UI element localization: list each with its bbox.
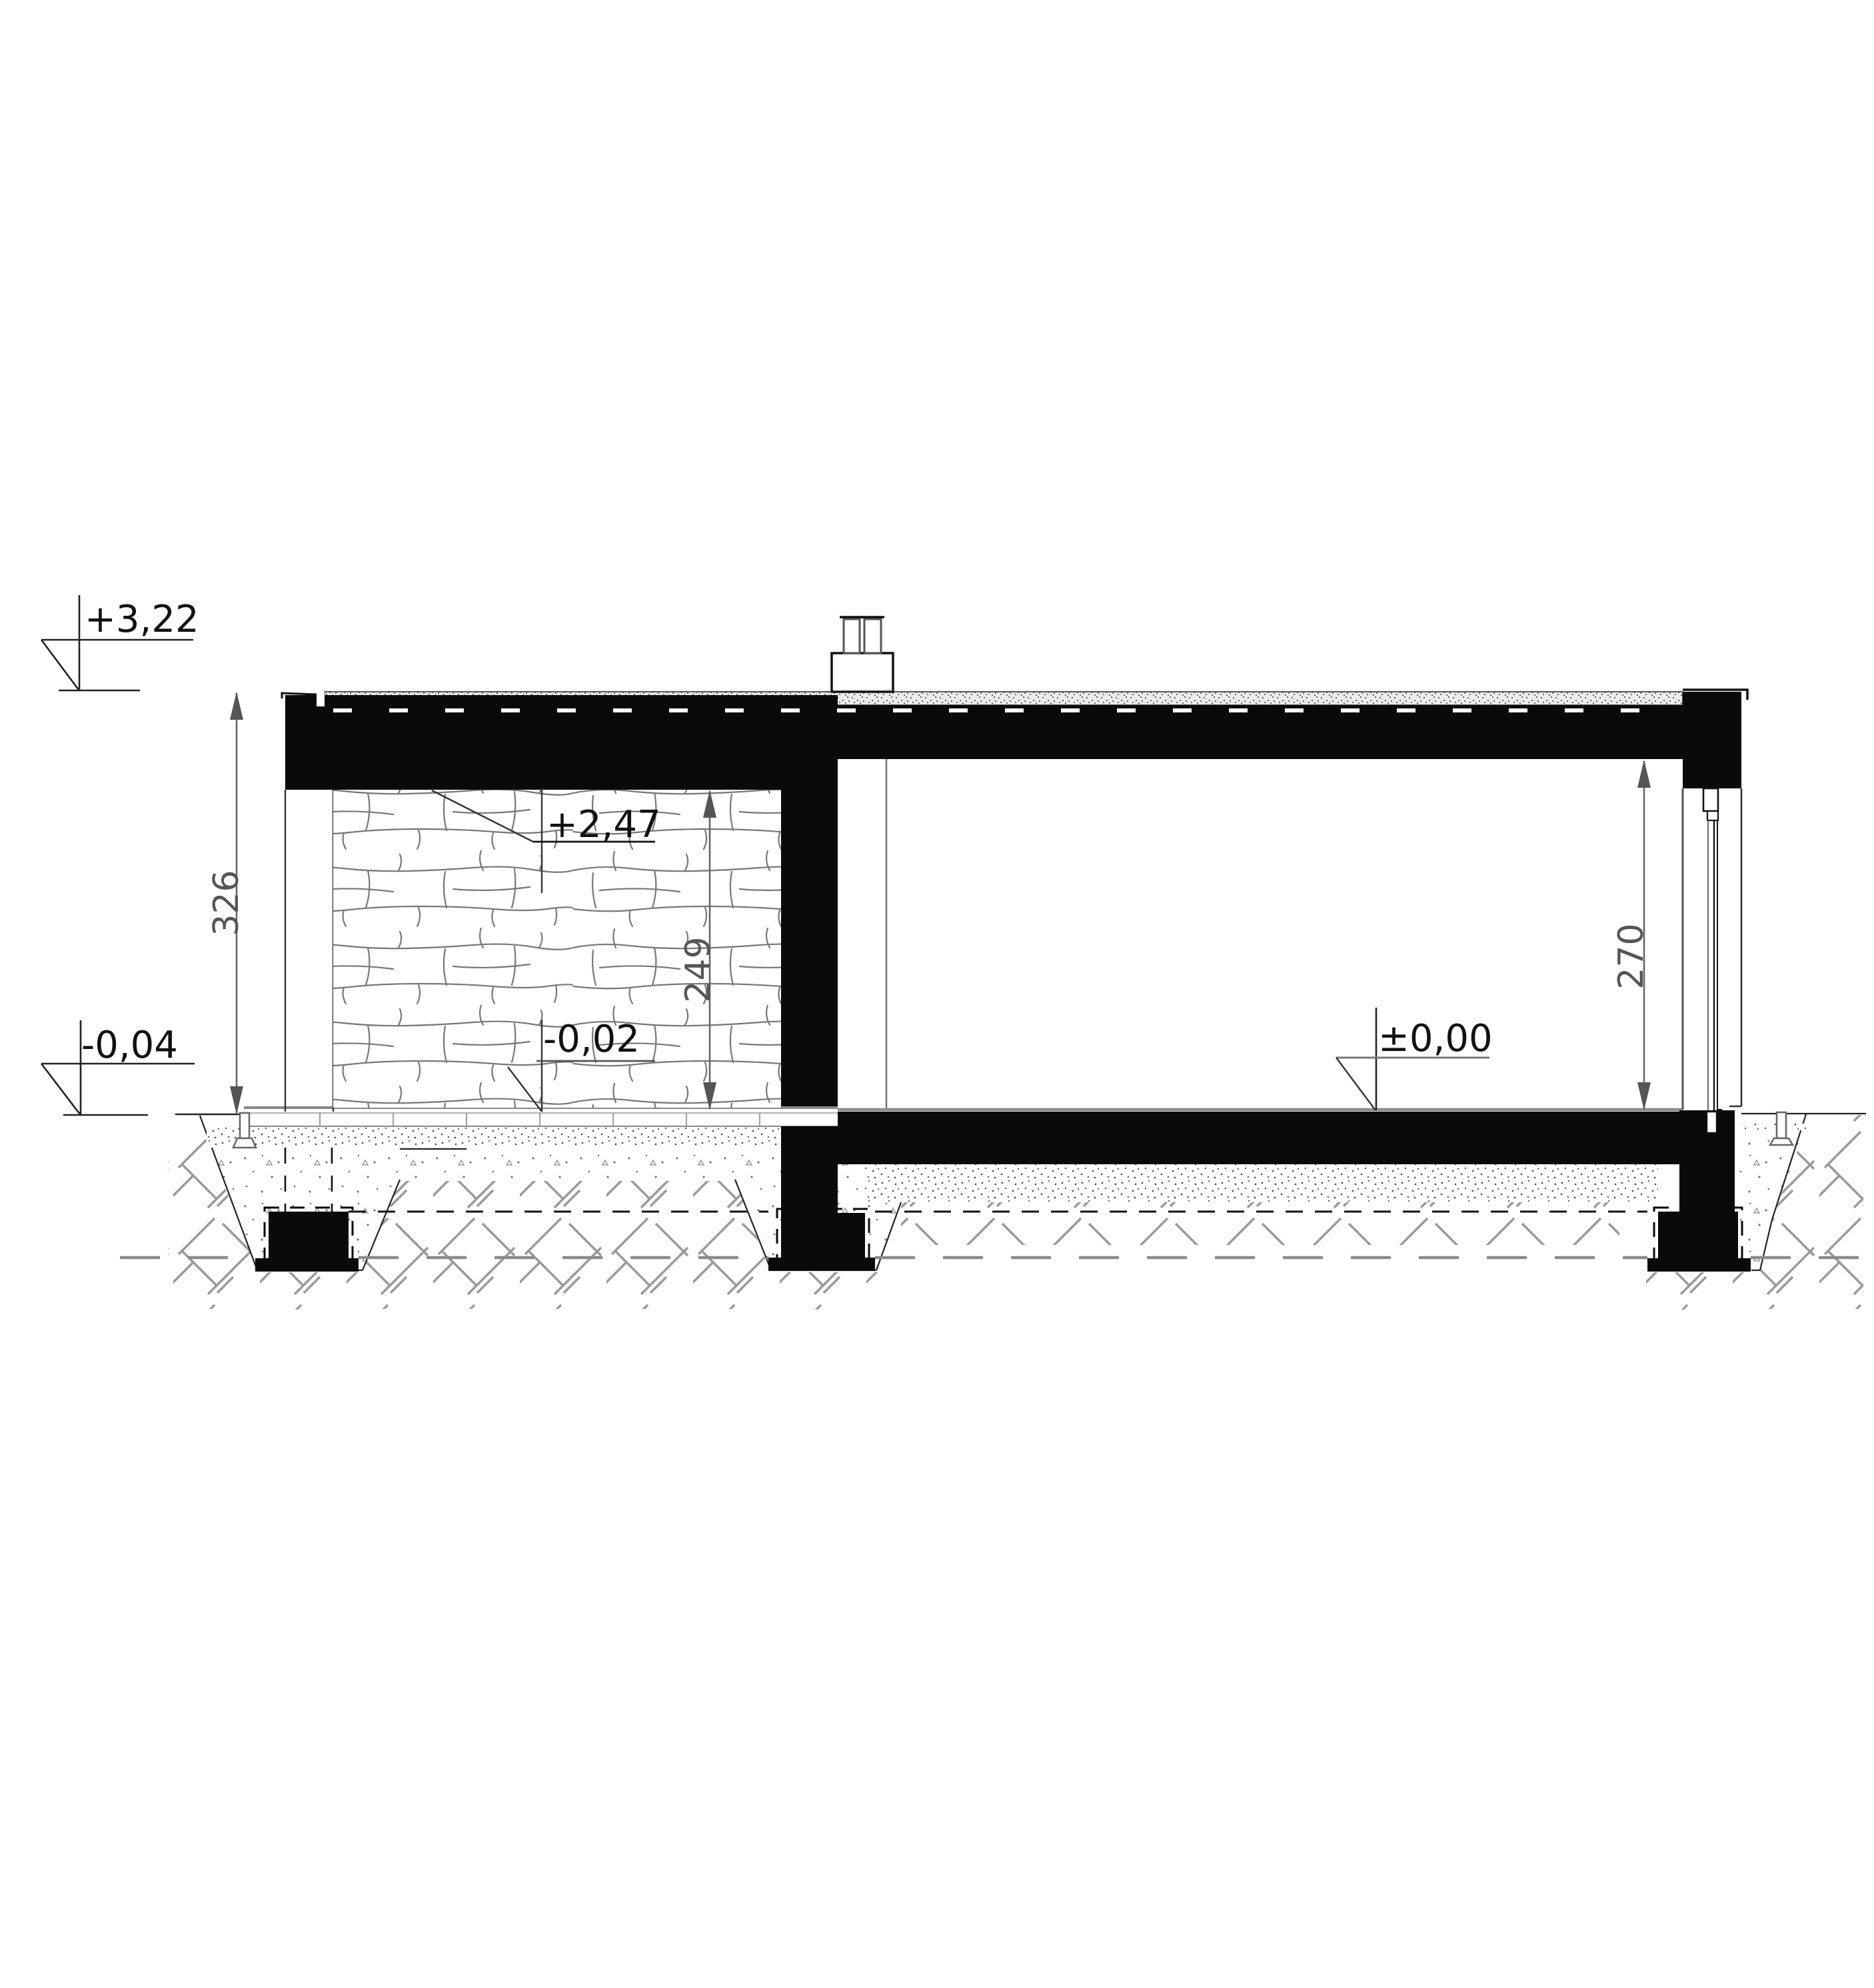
dim-porch-clear-label: 249: [678, 936, 718, 1002]
dim-room-clear-label: 270: [1611, 923, 1651, 989]
floor-sand-layer: [865, 1164, 1658, 1202]
floor-slab: [838, 1112, 1718, 1164]
roof-left-notch: [317, 692, 325, 706]
window: [1683, 788, 1741, 1133]
level-grade-label: -0,04: [81, 1024, 178, 1067]
roof-beam-interior: [781, 705, 1683, 759]
section-drawing: +3,22 -0,04 +2,47 -0,02 ±0,00 326: [0, 0, 1874, 1988]
level-terrace-label: -0,02: [543, 1018, 640, 1061]
level-floor-label: ±0,00: [1378, 1017, 1493, 1060]
window-head-frame: [1703, 788, 1718, 811]
exterior-bedding-strip: [1741, 1124, 1806, 1130]
roof-vent: [832, 617, 893, 692]
middle-wall-buried: [781, 1126, 838, 1213]
dim-room-clear: 270: [1611, 760, 1651, 1110]
dim-total-height: 326: [207, 692, 247, 1114]
roof-fascia-right: [1683, 692, 1741, 788]
level-marker-floor: ±0,00: [1336, 1008, 1493, 1110]
level-roof-label: +3,22: [85, 598, 199, 641]
window-seal: [1717, 1109, 1722, 1116]
window-sill-frame: [1707, 1112, 1717, 1133]
middle-wall: [781, 759, 838, 1106]
level-marker-roof: +3,22: [41, 595, 199, 690]
section-drawing-page: +3,22 -0,04 +2,47 -0,02 ±0,00 326: [0, 0, 1874, 1988]
level-porch-ceiling-label: +2,47: [546, 803, 661, 846]
porch-post-lines: [285, 790, 333, 1112]
level-marker-grade: -0,04: [41, 1020, 195, 1114]
dim-total-height-label: 326: [207, 870, 247, 936]
terrace-bedding-layer: [207, 1126, 838, 1148]
